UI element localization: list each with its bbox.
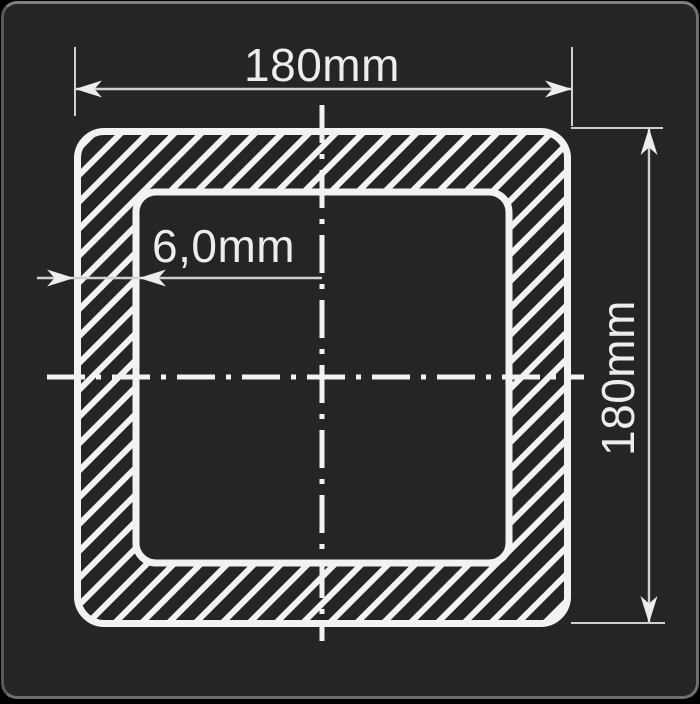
height-dimension-label: 180mm — [592, 300, 644, 456]
hollow-section-drawing: 180mm 180mm 6,0mm — [4, 4, 700, 704]
thickness-dimension-label: 6,0mm — [152, 220, 295, 272]
width-dimension-label: 180mm — [244, 39, 400, 91]
drawing-canvas: 180mm 180mm 6,0mm — [1, 1, 699, 699]
